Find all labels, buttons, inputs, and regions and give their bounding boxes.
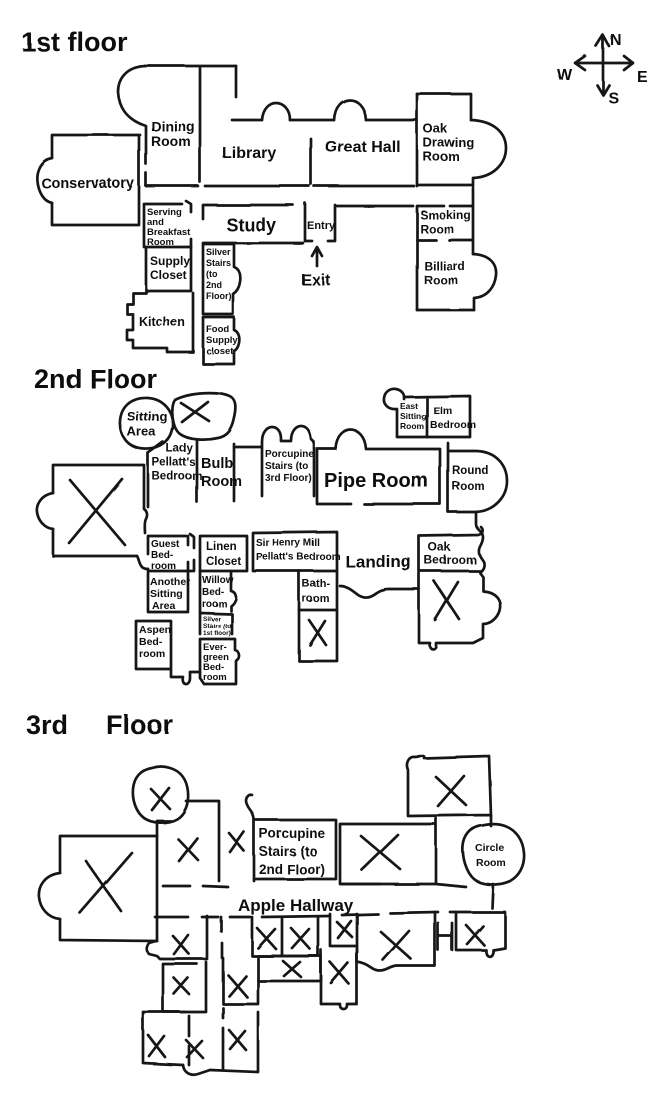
- svg-text:Round: Round: [452, 465, 488, 477]
- svg-text:Room: Room: [424, 273, 458, 287]
- svg-text:Drawing: Drawing: [423, 135, 474, 150]
- svg-text:Room: Room: [452, 481, 485, 493]
- svg-text:(to: (to: [206, 269, 218, 279]
- svg-text:Bed-: Bed-: [139, 636, 163, 648]
- svg-text:Bed-: Bed-: [151, 550, 173, 561]
- svg-text:room: room: [302, 593, 330, 605]
- svg-text:Bedroom: Bedroom: [424, 553, 477, 567]
- svg-text:Great Hall: Great Hall: [325, 139, 401, 156]
- svg-text:Room: Room: [201, 474, 242, 490]
- svg-text:Bath-: Bath-: [302, 578, 330, 590]
- svg-text:Sir Henry Mill: Sir Henry Mill: [256, 538, 320, 549]
- svg-text:1st floor): 1st floor): [203, 630, 231, 637]
- svg-text:Pipe Room: Pipe Room: [324, 470, 428, 492]
- svg-text:Oak: Oak: [428, 540, 451, 554]
- svg-text:Willow: Willow: [202, 575, 234, 586]
- svg-text:Oak: Oak: [423, 121, 448, 136]
- svg-text:W: W: [557, 67, 573, 84]
- svg-text:N: N: [610, 32, 622, 49]
- svg-text:Pellatt's: Pellatt's: [152, 457, 196, 469]
- svg-text:Bulb: Bulb: [201, 456, 233, 472]
- svg-text:Aspen: Aspen: [139, 624, 171, 636]
- svg-text:Smoking: Smoking: [420, 208, 471, 222]
- svg-text:Sitting: Sitting: [127, 409, 167, 424]
- svg-text:1st floor: 1st floor: [21, 27, 128, 57]
- svg-text:Entry: Entry: [307, 220, 336, 232]
- svg-text:Stairs (to: Stairs (to: [203, 623, 231, 630]
- svg-text:Silver: Silver: [206, 247, 231, 257]
- svg-text:Exit: Exit: [301, 272, 331, 289]
- svg-text:Area: Area: [152, 600, 176, 612]
- svg-text:Room: Room: [147, 237, 174, 248]
- svg-text:Library: Library: [222, 145, 276, 162]
- svg-text:Billiard: Billiard: [424, 259, 465, 273]
- svg-text:2nd Floor): 2nd Floor): [259, 862, 325, 877]
- svg-text:Bed-: Bed-: [202, 587, 224, 598]
- svg-text:room: room: [151, 561, 176, 572]
- svg-text:closet: closet: [206, 346, 234, 357]
- svg-text:Floor: Floor: [106, 710, 174, 740]
- svg-text:room: room: [203, 672, 227, 683]
- svg-text:Bedroom: Bedroom: [152, 471, 202, 483]
- svg-text:room: room: [139, 648, 165, 660]
- svg-text:Stairs: Stairs: [206, 258, 231, 268]
- svg-text:Closet: Closet: [206, 556, 241, 568]
- svg-text:Landing: Landing: [345, 552, 411, 571]
- svg-text:Floor): Floor): [206, 291, 232, 301]
- svg-text:Food: Food: [206, 324, 229, 335]
- svg-text:E: E: [637, 69, 648, 86]
- svg-text:Kitchen: Kitchen: [139, 315, 185, 329]
- svg-text:Stairs (to: Stairs (to: [259, 844, 318, 859]
- svg-text:3rd: 3rd: [26, 710, 68, 740]
- svg-text:2nd: 2nd: [206, 280, 222, 290]
- svg-text:Another: Another: [150, 576, 190, 588]
- svg-text:Apple Hallway: Apple Hallway: [238, 896, 354, 915]
- svg-text:Room: Room: [420, 222, 454, 236]
- svg-text:Supply: Supply: [150, 254, 190, 268]
- svg-text:S: S: [608, 90, 619, 107]
- svg-text:Linen: Linen: [206, 541, 237, 553]
- svg-text:Sitting: Sitting: [150, 588, 183, 600]
- svg-text:Circle: Circle: [475, 842, 504, 854]
- svg-text:Guest: Guest: [151, 539, 180, 550]
- svg-text:room: room: [202, 599, 227, 610]
- svg-text:Sitting: Sitting: [400, 411, 426, 421]
- svg-text:Area: Area: [127, 424, 157, 439]
- svg-text:Supply: Supply: [206, 335, 238, 346]
- svg-text:Conservatory: Conservatory: [41, 176, 134, 192]
- svg-text:Porcupine: Porcupine: [259, 826, 326, 841]
- svg-text:East: East: [400, 401, 418, 411]
- svg-text:Room: Room: [476, 857, 506, 869]
- svg-text:Room: Room: [151, 133, 191, 149]
- svg-text:3rd Floor): 3rd Floor): [265, 473, 312, 484]
- svg-text:Porcupine: Porcupine: [265, 449, 314, 460]
- svg-text:Room: Room: [423, 149, 460, 164]
- svg-text:2nd Floor: 2nd Floor: [34, 364, 157, 394]
- svg-text:Pellatt's Bedroom: Pellatt's Bedroom: [256, 552, 341, 563]
- svg-text:Stairs (to: Stairs (to: [265, 461, 308, 472]
- svg-text:Bedroom: Bedroom: [430, 419, 476, 431]
- svg-text:Room: Room: [400, 421, 425, 431]
- svg-text:Elm: Elm: [433, 405, 452, 417]
- svg-text:Study: Study: [226, 215, 276, 235]
- svg-text:Dining: Dining: [151, 118, 195, 134]
- svg-text:Silver: Silver: [203, 616, 221, 623]
- svg-text:Closet: Closet: [150, 268, 187, 282]
- svg-text:Lady: Lady: [166, 443, 193, 455]
